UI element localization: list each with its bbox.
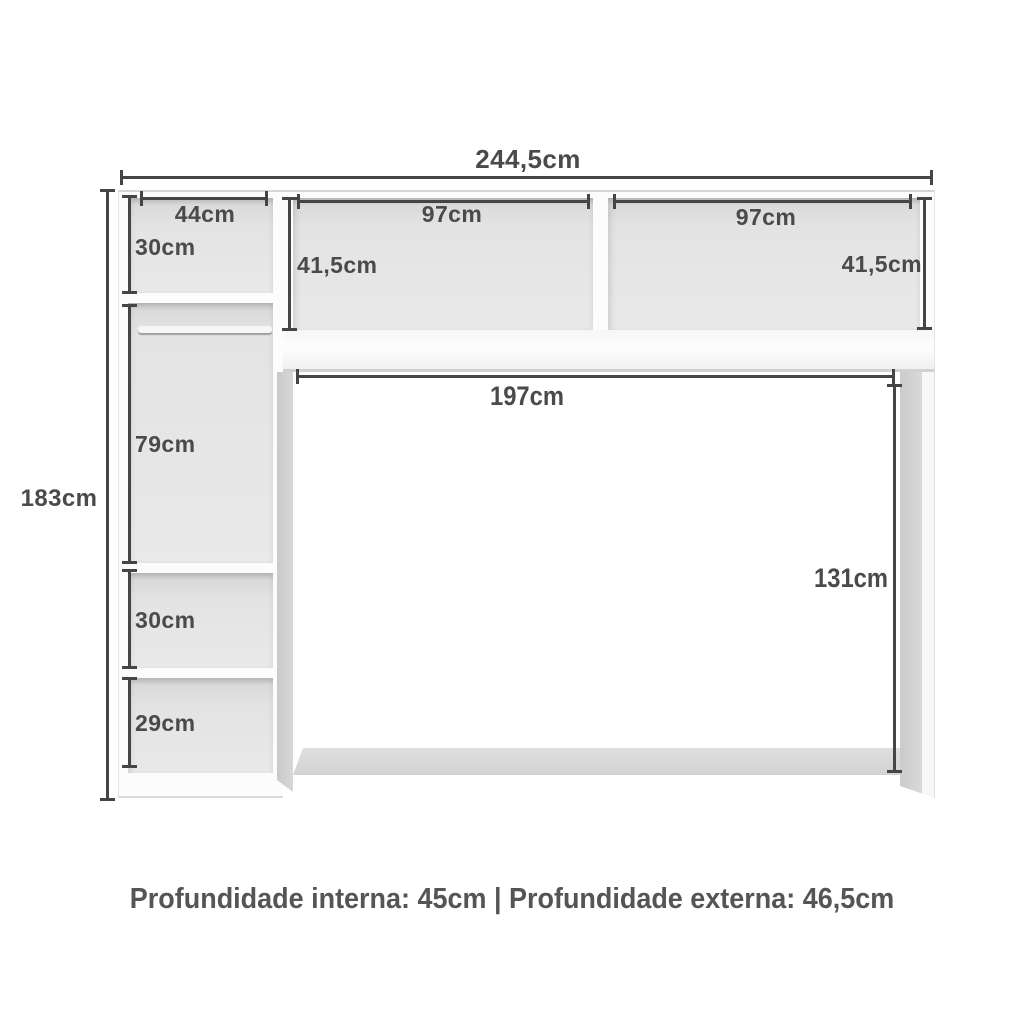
dim-hutch-left-height-label: 41,5cm: [297, 253, 377, 277]
dim-hutch-right-width-line: [613, 200, 912, 203]
depth-note: Profundidade interna: 45cm | Profundidad…: [36, 883, 988, 916]
dim-overall-width-label: 244,5cm: [400, 146, 656, 173]
desk-top-panel: [283, 330, 935, 372]
left-leg-panel: [277, 372, 293, 792]
dim-top-shelf-width-line: [140, 197, 268, 200]
dim-overall-height-line: [106, 189, 109, 801]
dim-hutch-right-width-label: 97cm: [686, 205, 846, 229]
dim-overall-width-line: [120, 176, 933, 179]
dim-top-shelf-height-label: 30cm: [135, 235, 195, 259]
dim-hutch-left-height-line: [288, 197, 291, 331]
hanging-rod: [138, 326, 272, 333]
dim-bottom-shelf-height-line: [128, 677, 131, 768]
dim-hanging-height-line: [128, 304, 131, 564]
diagram-canvas: 244,5cm 183cm 44cm 30cm 97cm 41,5cm 97cm…: [0, 0, 1024, 1024]
dim-opening-height-line: [893, 384, 896, 773]
dim-opening-width-label: 197cm: [439, 382, 615, 410]
right-leg-outer-face: [922, 372, 935, 798]
dim-middle-shelf-height-line: [128, 569, 131, 669]
dim-top-shelf-height-line: [128, 195, 131, 294]
dim-bottom-shelf-height-label: 29cm: [135, 711, 195, 735]
right-leg-panel: [900, 372, 935, 798]
dim-opening-height-label: 131cm: [774, 564, 888, 592]
dim-middle-shelf-height-label: 30cm: [135, 608, 195, 632]
back-bottom-rail: [293, 748, 900, 775]
dim-hanging-height-label: 79cm: [135, 432, 195, 456]
dim-hutch-right-height-line: [923, 197, 926, 330]
dim-hutch-left-width-label: 97cm: [372, 202, 532, 226]
dim-hutch-right-height-label: 41,5cm: [822, 252, 922, 276]
dim-top-shelf-width-label: 44cm: [148, 202, 262, 226]
right-leg-inner-face: [900, 372, 922, 798]
dim-opening-width-line: [296, 375, 895, 378]
dim-overall-height-label: 183cm: [14, 486, 104, 511]
